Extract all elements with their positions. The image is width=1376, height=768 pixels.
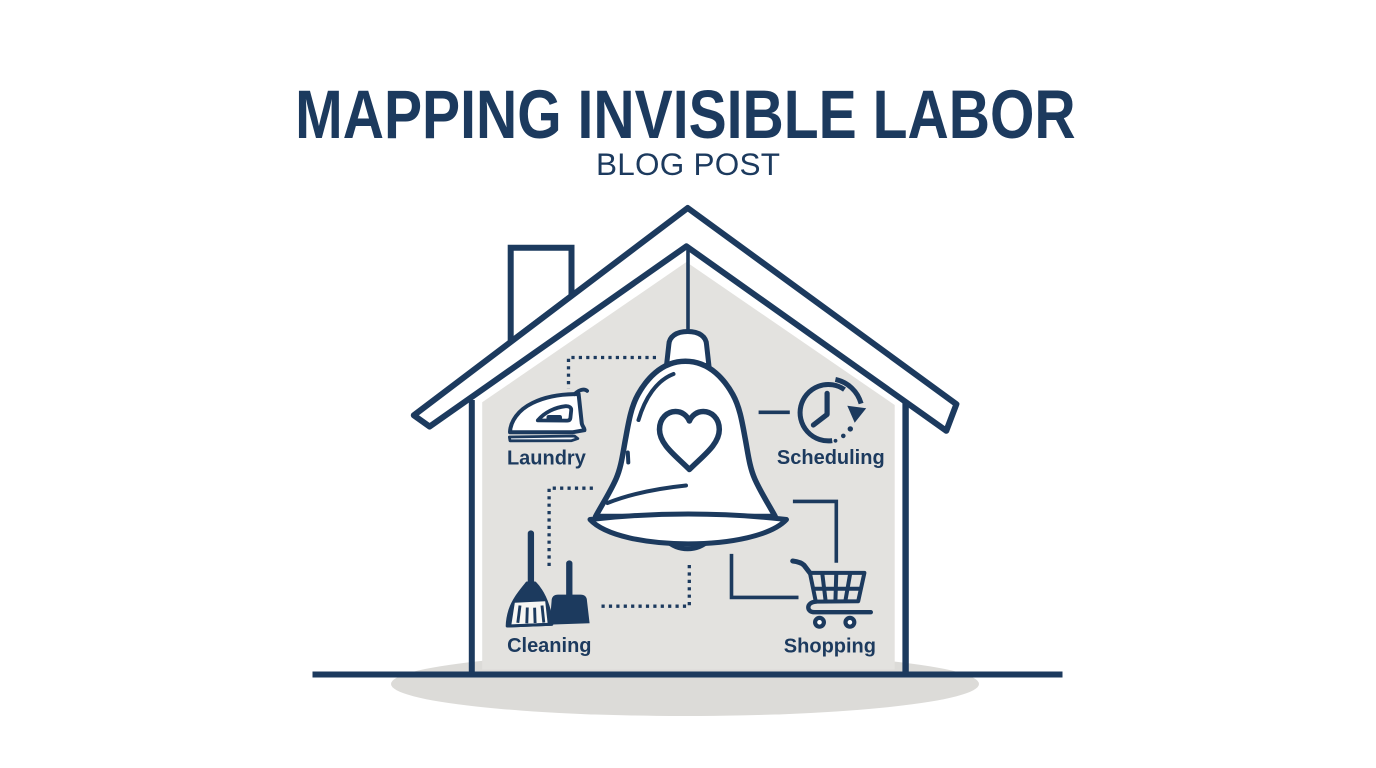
svg-text:BLOG POST: BLOG POST (596, 146, 780, 182)
svg-text:MAPPING INVISIBLE LABOR: MAPPING INVISIBLE LABOR (295, 76, 1076, 153)
svg-text:Shopping: Shopping (784, 635, 876, 657)
svg-text:Scheduling: Scheduling (777, 447, 885, 469)
svg-text:Cleaning: Cleaning (507, 635, 591, 657)
svg-text:Laundry: Laundry (507, 447, 587, 469)
